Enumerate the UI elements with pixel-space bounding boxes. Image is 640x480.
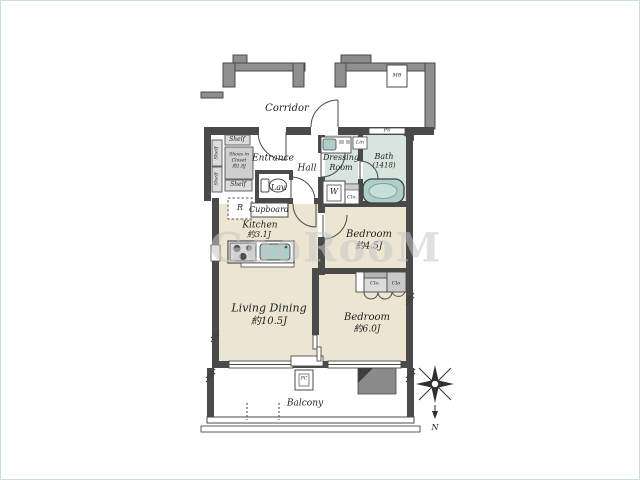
pipe-space-label: PS [384, 129, 391, 134]
stove-icon [230, 243, 256, 261]
compass-icon [416, 365, 454, 419]
bedroom-small-size: 約4.5J [356, 243, 383, 252]
balcony-label: Balcony [287, 400, 323, 409]
entrance-label: Entrance [252, 155, 294, 164]
bathtub-icon [363, 179, 404, 203]
vanity-sink-icon [321, 137, 351, 153]
hall-label: Hall [298, 165, 317, 174]
lavatory-label: Lav. [271, 184, 287, 192]
kitchen-sink-icon [260, 244, 290, 260]
shoes-closet-line3: 約1.8J [232, 166, 246, 171]
corridor-walls [201, 55, 435, 129]
balcony-slab [201, 426, 420, 432]
north-arrow [432, 411, 438, 419]
floor-plan: Corridor MB PS Shelf Shelf Shelf Shelf S… [0, 0, 640, 480]
balcony-rail [207, 417, 414, 423]
closet-right-label: Clo [392, 282, 400, 287]
dressing-closet-label: Clo. [347, 196, 357, 201]
left-wall-box [211, 245, 220, 261]
bedroom-large-label: Bedroom [344, 313, 390, 323]
bath-size: (1418) [372, 163, 395, 170]
living-dining-label: Living Dining [231, 303, 306, 314]
living-dining-size: 約10.5J [251, 317, 287, 327]
meter-box-label: MB [393, 74, 402, 79]
bedroom-small-label: Bedroom [346, 230, 392, 240]
bedroom-large-size: 約6.0J [354, 326, 381, 335]
shoes-closet-line2: Closet [232, 160, 247, 165]
compass-north-label: N [432, 424, 439, 432]
balcony-box-label: PC [301, 378, 308, 383]
corridor-label: Corridor [265, 104, 309, 114]
shelf-side-lower-label: Shelf [215, 172, 220, 185]
shoes-closet-line1: Shoes in [229, 154, 249, 159]
closet-left-label: Clo. [370, 282, 380, 287]
dressing-room-label-1: Dressing [323, 154, 359, 162]
washer-label: W [330, 188, 338, 196]
linen-label: Lin [356, 141, 364, 146]
shelf-bottom-label: Shelf [230, 182, 246, 188]
refrigerator-label: R [237, 204, 243, 212]
cupboard-label: Cupboard [249, 206, 289, 214]
kitchen-size: 約3.1J [247, 231, 271, 239]
dressing-room-label-2: Room [329, 164, 352, 172]
shelf-top-label: Shelf [229, 137, 245, 143]
shelf-side-upper-label: Shelf [215, 146, 220, 159]
bath-label: Bath [374, 153, 393, 161]
